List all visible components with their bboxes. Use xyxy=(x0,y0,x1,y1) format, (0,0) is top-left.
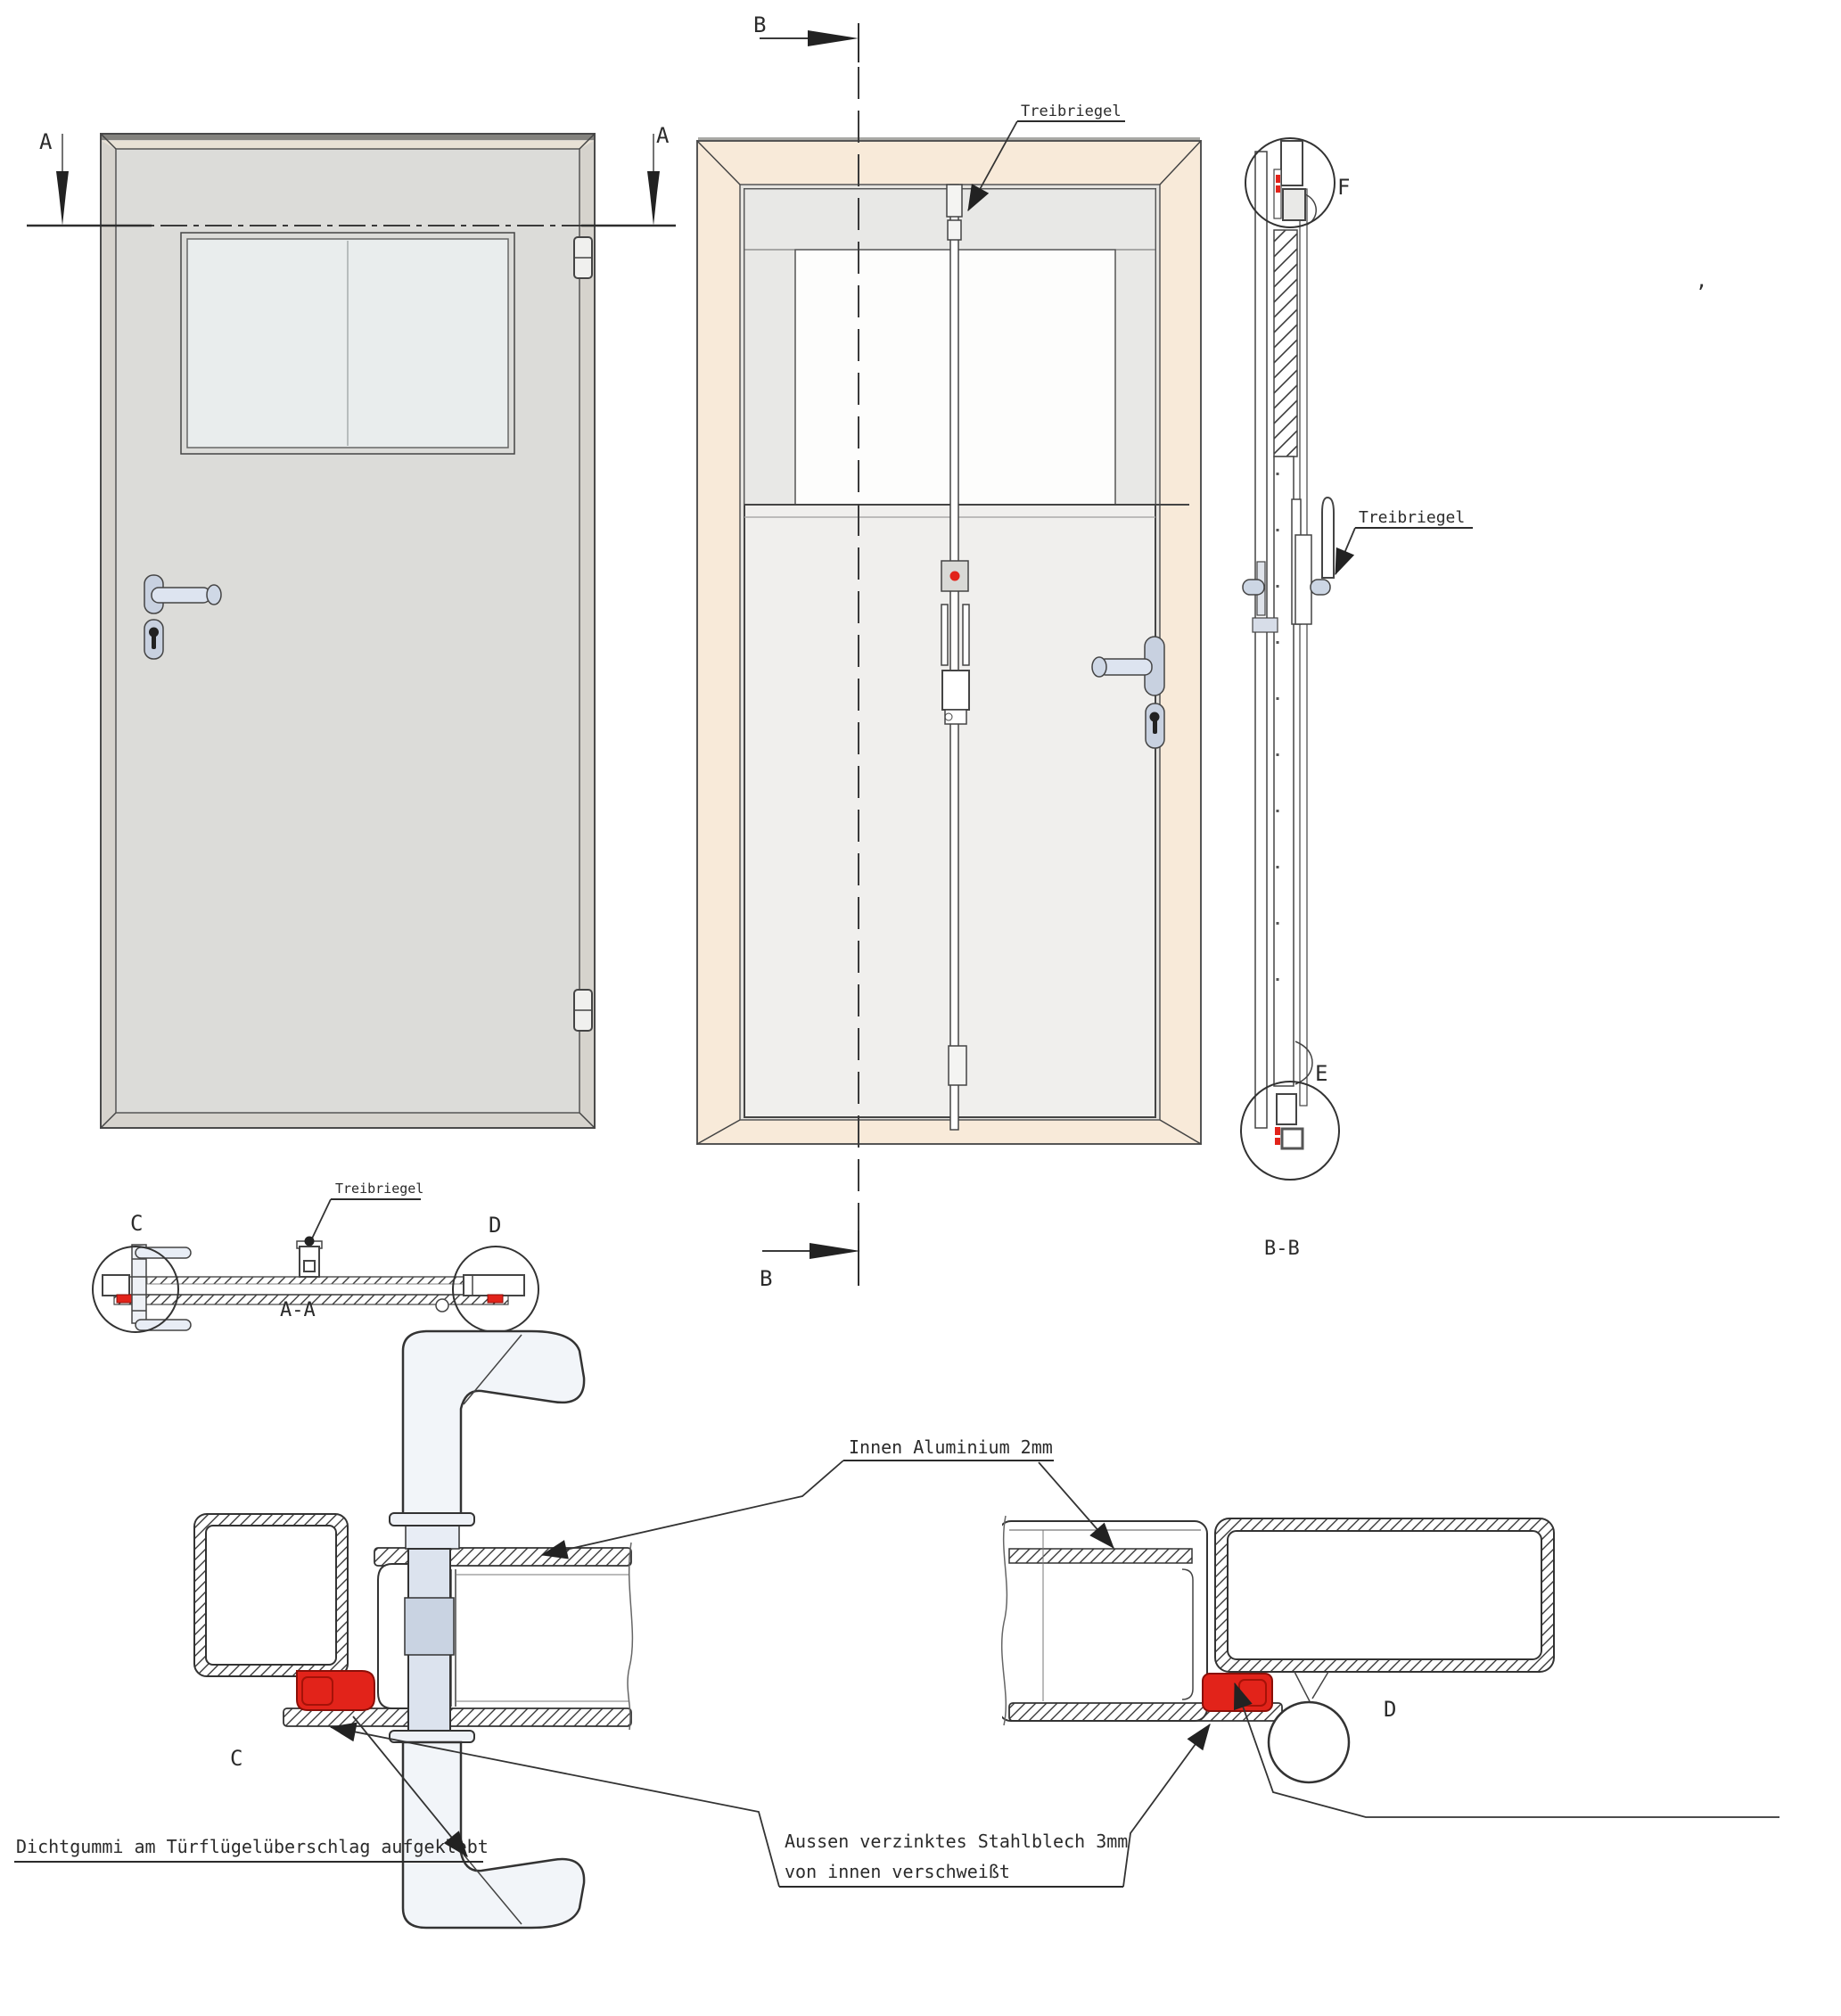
side-bottom-detail xyxy=(1275,1094,1303,1148)
callout-treibriegel-side: Treibriegel xyxy=(1336,508,1473,574)
seal-section-right xyxy=(488,1295,503,1303)
espagnolette-lever xyxy=(1322,498,1334,578)
detail-label-c: C xyxy=(230,1746,242,1771)
stray-mark: , xyxy=(1696,270,1707,292)
detail-label-d: D xyxy=(1384,1697,1396,1722)
rod-bottom-guide xyxy=(949,1046,966,1085)
section-arrow-b-bottom xyxy=(810,1243,860,1259)
seal-detail-c xyxy=(297,1671,374,1710)
treibriegel-side-label: Treibriegel xyxy=(1359,508,1465,527)
inner-aluminium-section xyxy=(147,1277,464,1284)
hinge-assembly xyxy=(405,1524,459,1731)
detail-d-view: D xyxy=(988,1516,1779,1817)
handle-spindle-right xyxy=(1311,580,1330,595)
glazing-hatched-strip xyxy=(1274,230,1297,457)
seal-label: Dichtgummi am Türflügelüberschlag aufgek… xyxy=(16,1836,489,1857)
rod-top-guide xyxy=(947,185,962,217)
side-top-detail xyxy=(1274,141,1316,225)
front-door-cylinder-lock xyxy=(144,620,163,659)
seal-mark-top-1 xyxy=(1276,175,1280,183)
door-panel-edge xyxy=(1255,152,1267,1128)
hinge-top-icon xyxy=(574,237,592,278)
side-section-view: F E B-B Treibriegel xyxy=(1241,138,1473,1260)
seal-mark-bottom-1 xyxy=(1275,1127,1280,1135)
seal-mark-bottom-2 xyxy=(1275,1138,1280,1145)
section-title-aa: A-A xyxy=(280,1299,316,1321)
leaf-right-stile xyxy=(1115,250,1155,505)
technical-drawing-door: A A xyxy=(0,0,1841,2016)
screw-head-icon xyxy=(436,1299,448,1312)
inside-view xyxy=(697,137,1201,1144)
frame-end-left xyxy=(103,1275,129,1296)
detail-marker-f: F xyxy=(1337,175,1350,200)
section-arrow-b-top xyxy=(808,30,859,46)
leader-dot xyxy=(305,1237,315,1247)
handle-collar-top xyxy=(390,1513,474,1526)
seal-mark-top-2 xyxy=(1276,185,1280,193)
buffer-connector xyxy=(1294,1672,1328,1701)
lock-channel xyxy=(1274,457,1294,1086)
inner-sheet-label: Innen Aluminium 2mm xyxy=(849,1436,1053,1458)
detail-marker-d: D xyxy=(489,1213,501,1238)
treibriegel-top-label: Treibriegel xyxy=(1021,103,1122,120)
detail-marker-c: C xyxy=(130,1211,143,1236)
hinge-knuckle xyxy=(405,1598,454,1655)
leaf-left-stile xyxy=(744,250,795,505)
lock-red-indicator xyxy=(950,572,960,581)
handle-lower-grip xyxy=(403,1742,584,1928)
inner-aluminium-sheet-d xyxy=(1009,1549,1192,1563)
drawing-canvas: A A xyxy=(0,0,1841,2016)
espagnolette-housing-section xyxy=(297,1241,322,1277)
marker-b-bottom: B xyxy=(760,1266,772,1291)
outer-sheet-label-line2: von innen verschweißt xyxy=(785,1861,1010,1882)
inside-door-cylinder-lock xyxy=(1146,704,1164,748)
section-title-bb: B-B xyxy=(1264,1238,1300,1260)
front-view xyxy=(101,134,595,1128)
rod-edge-on xyxy=(1300,189,1307,1106)
detail-marker-e: E xyxy=(1315,1061,1327,1086)
hinge-bottom-icon xyxy=(574,990,592,1031)
marker-b-top: B xyxy=(753,12,766,37)
treibriegel-section-label: Treibriegel xyxy=(335,1181,423,1197)
callout-treibriegel-section: Treibriegel xyxy=(305,1181,424,1247)
section-arrow-a-left xyxy=(56,171,69,193)
handle-upper-grip xyxy=(403,1331,584,1516)
section-a-a-view: C D A-A Treibriegel xyxy=(93,1181,538,1332)
handle-spindle-left xyxy=(1243,580,1264,595)
rubber-buffer xyxy=(1269,1702,1349,1782)
section-arrow-a-right xyxy=(647,171,660,193)
marker-a-right: A xyxy=(656,123,670,148)
outer-sheet-label-line1: Aussen verzinktes Stahlblech 3mm xyxy=(785,1831,1128,1852)
marker-a-left: A xyxy=(39,129,53,154)
front-frame-top-edge xyxy=(102,135,594,140)
